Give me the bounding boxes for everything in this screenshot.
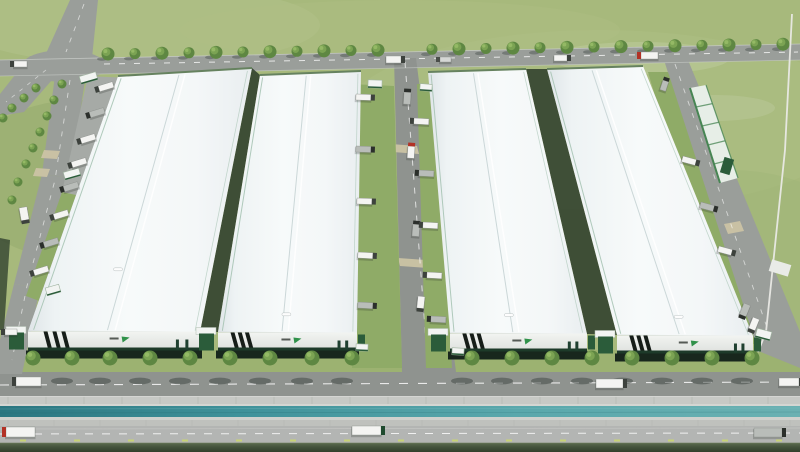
tree-highlight bbox=[724, 40, 728, 44]
truck-cab bbox=[782, 428, 786, 437]
canal-edge-upper bbox=[0, 404, 800, 406]
tree-shadow bbox=[89, 378, 111, 385]
tree-highlight bbox=[590, 43, 593, 46]
facade-door bbox=[345, 341, 348, 350]
tree-highlight bbox=[373, 45, 377, 49]
tree-highlight bbox=[103, 49, 107, 53]
truck-trailer bbox=[358, 302, 373, 309]
tree-highlight bbox=[211, 48, 215, 52]
truck-trailer bbox=[417, 296, 425, 309]
tree-highlight bbox=[105, 352, 110, 357]
tree-shadow bbox=[331, 378, 353, 385]
tree-highlight bbox=[265, 47, 269, 51]
lane-marker-yellow bbox=[20, 440, 26, 442]
tree-shadow bbox=[491, 378, 513, 385]
truck bbox=[753, 428, 786, 439]
truck-cab bbox=[415, 170, 419, 176]
lane-marker-yellow bbox=[452, 440, 458, 442]
tree-highlight bbox=[21, 95, 24, 98]
lane-marker-yellow bbox=[560, 440, 566, 442]
truck-trailer bbox=[386, 56, 401, 63]
lane-marker-yellow bbox=[776, 440, 782, 442]
tree-highlight bbox=[778, 39, 782, 43]
boundary-hedge bbox=[0, 443, 800, 452]
dock-canopy bbox=[452, 348, 464, 356]
truck-trailer bbox=[5, 329, 17, 335]
tree-highlight bbox=[428, 45, 431, 48]
truck-trailer bbox=[754, 428, 782, 437]
tree-highlight bbox=[536, 44, 539, 47]
dock-canopy bbox=[356, 344, 368, 351]
road-crossing-pad bbox=[41, 150, 60, 159]
truck-cab bbox=[401, 56, 405, 63]
truck-cab bbox=[373, 303, 377, 309]
truck-cab bbox=[416, 308, 423, 312]
truck-trailer bbox=[357, 198, 372, 205]
truck-trailer bbox=[16, 377, 41, 386]
tree-highlight bbox=[747, 352, 752, 357]
lane-marker-yellow bbox=[74, 440, 80, 442]
truck-trailer bbox=[412, 224, 420, 237]
dock-canopy bbox=[420, 84, 432, 92]
truck-cab bbox=[436, 57, 440, 62]
gatehouse bbox=[431, 335, 446, 352]
truck-trailer bbox=[403, 92, 411, 104]
tree-highlight bbox=[467, 352, 472, 357]
truck-trailer bbox=[423, 222, 438, 229]
truck-cab bbox=[371, 95, 375, 101]
lane-marker-yellow bbox=[668, 440, 674, 442]
tree-highlight bbox=[307, 352, 312, 357]
truck-cab bbox=[419, 222, 423, 228]
tree-shadow bbox=[531, 378, 553, 385]
tree-highlight bbox=[23, 161, 26, 164]
tree-highlight bbox=[482, 44, 485, 47]
tree-highlight bbox=[319, 46, 323, 50]
logo-text bbox=[110, 338, 119, 340]
tree-shadow bbox=[129, 378, 151, 385]
tree-shadow bbox=[51, 378, 73, 385]
tree-shadow bbox=[291, 378, 313, 385]
lane-marker-yellow bbox=[128, 440, 134, 442]
truck bbox=[12, 377, 42, 388]
tree-highlight bbox=[347, 46, 350, 49]
corner-structure bbox=[588, 336, 595, 350]
tree-highlight bbox=[131, 49, 134, 52]
truck-cab bbox=[427, 316, 431, 322]
tree-shadow bbox=[731, 378, 753, 385]
truck-cab bbox=[2, 427, 6, 437]
tree-shadow bbox=[571, 378, 593, 385]
truck-cab bbox=[408, 143, 415, 147]
lane-marker-yellow bbox=[722, 440, 728, 442]
tree-highlight bbox=[9, 197, 12, 200]
truck-trailer bbox=[419, 170, 434, 177]
tree-highlight bbox=[265, 352, 270, 357]
truck-trailer bbox=[414, 118, 429, 125]
lane-marker-yellow bbox=[344, 440, 350, 442]
truck-cab bbox=[423, 272, 427, 278]
tree-shadow bbox=[691, 378, 713, 385]
truck-trailer bbox=[427, 272, 442, 279]
truck-cab bbox=[1, 329, 5, 335]
truck-cab bbox=[381, 426, 385, 435]
tree-highlight bbox=[752, 40, 755, 43]
tree-highlight bbox=[225, 352, 230, 357]
truck-cab bbox=[410, 118, 414, 124]
logo-text bbox=[679, 342, 688, 344]
truck-cab bbox=[373, 253, 377, 259]
tree-shadow bbox=[451, 378, 473, 385]
tree-highlight bbox=[157, 48, 161, 52]
truck-trailer bbox=[6, 427, 35, 437]
tree-highlight bbox=[185, 49, 188, 52]
truck-trailer bbox=[431, 316, 446, 323]
truck-trailer bbox=[554, 55, 567, 61]
tree-highlight bbox=[15, 179, 18, 182]
gatehouse bbox=[598, 337, 613, 354]
truck-cab bbox=[623, 379, 627, 388]
truck-trailer bbox=[358, 252, 373, 259]
facade-door bbox=[185, 340, 188, 350]
tree-shadow bbox=[209, 378, 231, 385]
truck-trailer bbox=[641, 52, 658, 59]
facade-door bbox=[575, 342, 578, 351]
lane-marker-yellow bbox=[506, 440, 512, 442]
truck-cab bbox=[404, 89, 411, 93]
tree-shadow bbox=[249, 378, 271, 385]
tree-highlight bbox=[627, 352, 632, 357]
tree-highlight bbox=[239, 48, 242, 51]
sidewalk-lower bbox=[0, 420, 800, 426]
roof-vent bbox=[674, 315, 683, 318]
truck-trailer bbox=[356, 146, 371, 153]
tree-highlight bbox=[670, 41, 674, 45]
tree-highlight bbox=[508, 43, 512, 47]
gatehouse-roof bbox=[428, 329, 448, 336]
lane-marker-yellow bbox=[182, 440, 188, 442]
lane-marker-yellow bbox=[614, 440, 620, 442]
tree-highlight bbox=[67, 352, 72, 357]
facade-base-strip bbox=[218, 348, 357, 351]
roof-vent bbox=[282, 313, 291, 316]
truck-cab bbox=[372, 199, 376, 205]
roof-vent bbox=[114, 268, 123, 271]
canal-edge-lower bbox=[0, 417, 800, 420]
truck bbox=[351, 426, 385, 437]
sidewalk-upper bbox=[0, 396, 800, 404]
truck-cab bbox=[10, 61, 14, 67]
logo-text bbox=[281, 339, 290, 341]
industrial-park-aerial-view bbox=[0, 0, 800, 452]
road-crossing-pad bbox=[33, 168, 50, 177]
truck-trailer bbox=[14, 61, 27, 67]
tree-shadow bbox=[651, 378, 673, 385]
tree-highlight bbox=[644, 42, 647, 45]
tree-highlight bbox=[293, 47, 296, 50]
truck-cab bbox=[371, 147, 375, 153]
tree-highlight bbox=[698, 41, 701, 44]
lane-marker-yellow bbox=[398, 440, 404, 442]
tree-highlight bbox=[667, 352, 672, 357]
facade-door bbox=[734, 344, 737, 353]
facade-door bbox=[568, 342, 571, 351]
dock-canopy bbox=[368, 80, 382, 88]
truck bbox=[595, 379, 627, 390]
lane-marker-yellow bbox=[290, 440, 296, 442]
gatehouse-roof bbox=[595, 331, 615, 338]
roof-vent bbox=[504, 314, 513, 317]
truck-trailer bbox=[779, 378, 799, 386]
tree-highlight bbox=[51, 97, 54, 100]
truck bbox=[637, 52, 659, 61]
tree-highlight bbox=[616, 42, 620, 46]
facade-door bbox=[338, 341, 341, 350]
truck-cab bbox=[567, 55, 571, 61]
truck-trailer bbox=[440, 57, 451, 62]
facade-door bbox=[741, 344, 744, 353]
tree-highlight bbox=[587, 352, 592, 357]
tree-highlight bbox=[44, 113, 47, 116]
truck-trailer bbox=[596, 379, 623, 388]
gatehouse-roof bbox=[196, 328, 216, 335]
tree-highlight bbox=[707, 352, 712, 357]
truck-cab bbox=[12, 377, 16, 386]
tree-highlight bbox=[28, 352, 33, 357]
tree-highlight bbox=[30, 145, 33, 148]
tree-highlight bbox=[454, 44, 458, 48]
truck-trailer bbox=[356, 94, 371, 101]
gatehouse bbox=[199, 334, 214, 351]
tree-highlight bbox=[185, 352, 190, 357]
facade-base-strip bbox=[28, 348, 200, 351]
truck-trailer bbox=[352, 426, 381, 435]
lane-marker-yellow bbox=[236, 440, 242, 442]
tree-highlight bbox=[547, 352, 552, 357]
truck-trailer bbox=[407, 146, 415, 158]
facade-door bbox=[176, 340, 179, 350]
tree-highlight bbox=[33, 85, 36, 88]
tree-highlight bbox=[562, 43, 566, 47]
scene-svg bbox=[0, 0, 800, 452]
truck bbox=[2, 427, 36, 439]
tree-highlight bbox=[59, 81, 62, 84]
canal bbox=[0, 406, 800, 417]
logo-text bbox=[512, 340, 521, 342]
tree-highlight bbox=[507, 352, 512, 357]
truck-cab bbox=[637, 52, 641, 59]
tree-highlight bbox=[347, 352, 352, 357]
tree-shadow bbox=[169, 378, 191, 385]
tree-highlight bbox=[37, 129, 40, 132]
corner-structure bbox=[754, 338, 761, 352]
tree-highlight bbox=[9, 105, 12, 108]
truck bbox=[415, 296, 425, 312]
tree-highlight bbox=[145, 352, 150, 357]
truck bbox=[778, 378, 800, 388]
